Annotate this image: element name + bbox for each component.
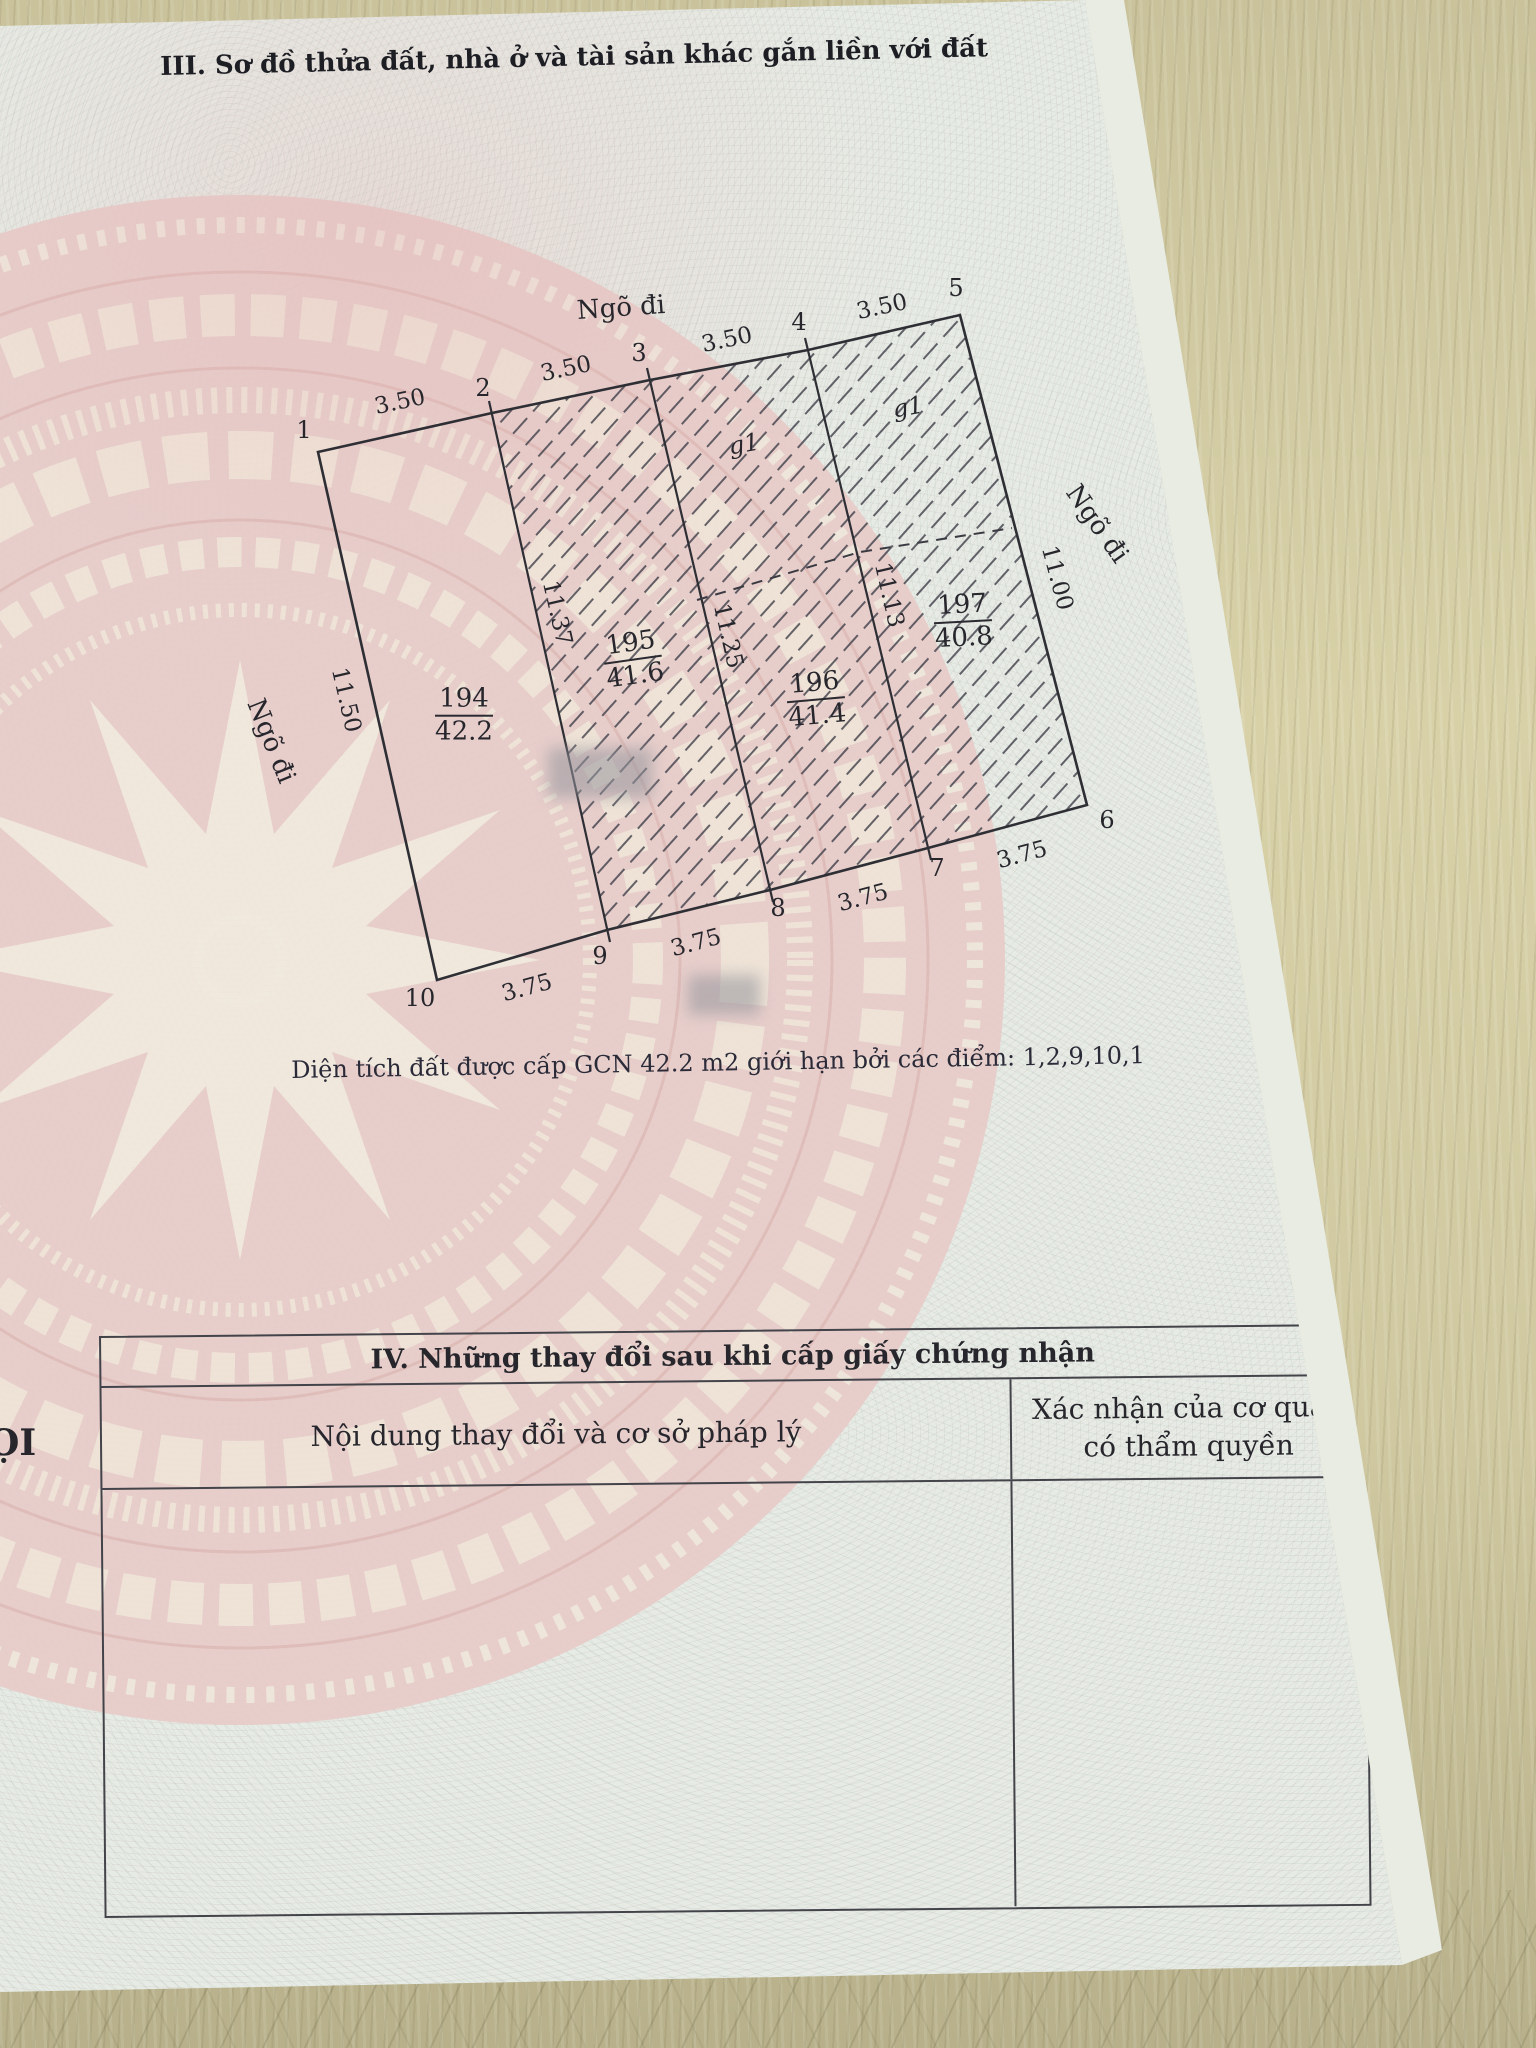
alley-label-top: Ngõ đi [576,290,666,326]
col-header-changes: Nội dung thay đổi và cơ sở pháp lý [101,1379,1010,1488]
plot-196-number: 196 [784,667,844,699]
blurred-watermark [688,975,760,1015]
point-7: 7 [929,854,944,882]
section4-header-row: Nội dung thay đổi và cơ sở pháp lý Xác n… [101,1376,1365,1490]
plot-label-197: 197 40.8 [932,590,993,654]
north-arrow-head [1213,128,1231,160]
plot-label-195: 195 41.6 [600,626,666,694]
page-edge-cut-text: ỌI [0,1422,36,1464]
point-5: 5 [948,274,963,302]
point-1: 1 [296,416,311,444]
point-10: 10 [405,984,436,1012]
blurred-watermark [548,748,652,798]
plot-label-194: 194 42.2 [435,686,493,747]
section4-table: IV. Những thay đổi sau khi cấp giấy chứn… [99,1324,1372,1918]
plot-197-number: 197 [932,590,991,620]
point-2: 2 [475,374,490,402]
north-label: B [1200,188,1225,223]
point-9: 9 [592,942,607,970]
photo-of-land-certificate-page: { "section3": { "title": "III. Sơ đồ thử… [0,0,1536,2048]
point-3: 3 [631,339,646,367]
plot-194-area: 42.2 [435,719,493,746]
point-6: 6 [1099,806,1114,834]
certificate-page: III. Sơ đồ thửa đất, nhà ở và tài sản kh… [0,0,1536,2048]
house-label-g1-b: g1 [890,391,925,424]
plot-196-area: 41.4 [787,700,847,732]
changes-cell-empty [102,1481,1014,1915]
point-8: 8 [770,894,785,922]
plot-194-number: 194 [435,686,493,713]
house-label-g1-a: g1 [726,428,761,461]
col-header-authority-line1: Xác nhận của cơ quan [1032,1388,1345,1429]
plot-197-area: 40.8 [934,623,993,653]
col-header-authority-line2: có thẩm quyền [1083,1427,1294,1467]
point-4: 4 [791,308,806,336]
section4-empty-body [102,1478,1369,1915]
plot-label-196: 196 41.4 [784,667,847,732]
authority-cell-empty [1010,1478,1369,1906]
